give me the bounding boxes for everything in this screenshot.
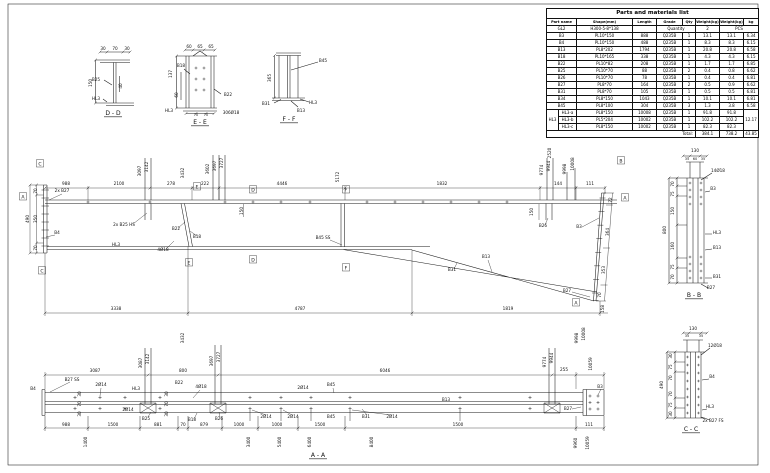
table-cell: PL10*82 xyxy=(577,61,633,68)
section-marker: A xyxy=(572,299,579,307)
dim-label: 70 xyxy=(33,188,38,194)
table-cell: Q235B xyxy=(657,75,683,82)
drawing-label: 1000 xyxy=(272,422,283,427)
table-cell: 6.15 xyxy=(744,40,759,47)
drawing-label: HL3 xyxy=(713,230,721,235)
table-row: Parts and materials list xyxy=(547,9,759,19)
drawing-label: B3 xyxy=(597,384,603,389)
drawing-label: B27 xyxy=(563,288,572,293)
table-cell: 1.7 xyxy=(720,61,744,68)
drawing-label: HL3 xyxy=(92,96,100,101)
drawing-label: 130 xyxy=(689,326,697,331)
table-cell: 2 xyxy=(696,26,720,33)
table-cell: Part name xyxy=(547,19,577,26)
table-cell: 10002 xyxy=(633,124,657,131)
table-cell: 1043 xyxy=(633,96,657,103)
table-row: B13PL8*2021794Q235B120.820.86.58 xyxy=(547,47,759,54)
table-cell: 20.8 xyxy=(720,47,744,54)
drawing-label: 879 xyxy=(200,422,208,427)
drawing-label: 111 xyxy=(586,181,594,186)
table-row: Total:384.1738.243.85 xyxy=(547,131,759,138)
table-cell: 6.81 xyxy=(744,75,759,82)
table-cell: 1 xyxy=(683,89,696,96)
drawing-label: B26 xyxy=(215,416,224,421)
dim-label: 8400 xyxy=(369,436,374,447)
dim-label: 70 xyxy=(597,292,602,298)
section-marker: A xyxy=(621,194,628,202)
table-cell: Total: xyxy=(547,131,696,138)
drawing-label: 14Ø18 xyxy=(711,168,725,173)
table-row: GL2H300-5-8*138Quantity2PCS xyxy=(547,26,759,33)
dim-label: 40 xyxy=(118,83,123,89)
table-cell: 338 xyxy=(633,54,657,61)
table-cell: Q235B xyxy=(657,54,683,61)
section-cc-lines xyxy=(667,333,710,420)
table-cell: Grade xyxy=(657,19,683,26)
section-title-ee: E - E xyxy=(193,119,207,126)
table-cell: B31 xyxy=(547,89,577,96)
drawing-label: B31 xyxy=(262,101,271,106)
table-cell: Q235B xyxy=(657,40,683,47)
table-cell: 164 xyxy=(633,82,657,89)
dim-label: 75 xyxy=(668,402,673,408)
table-row: HL3-cPL8*15010002Q235B182.382.3 xyxy=(547,124,759,131)
table-cell: 1794 xyxy=(633,47,657,54)
table-cell: 1 xyxy=(683,40,696,47)
table-cell: GL2 xyxy=(547,26,577,33)
table-cell: 488 xyxy=(633,40,657,47)
drawing-label: 2Ø14 xyxy=(122,407,134,412)
table-cell: 102.2 xyxy=(720,117,744,124)
drawing-label: 2Ø14 xyxy=(297,385,309,390)
table-cell: PL8*70 xyxy=(577,82,633,89)
table-cell: 1.7 xyxy=(696,61,720,68)
dim-label: 3697 xyxy=(209,355,214,366)
drawing-label: 35 xyxy=(685,157,689,161)
table-cell: 6.58 xyxy=(744,103,759,110)
table-row: B31PL8*70105Q235B10.50.56.81 xyxy=(547,89,759,96)
drawing-label: B45 xyxy=(327,414,336,419)
dim-label: 10059 xyxy=(588,357,593,371)
table-cell: 0.9 xyxy=(720,82,744,89)
dim-label: 3727 xyxy=(219,157,224,168)
dim-label: 353 xyxy=(601,266,606,274)
drawing-label: B13 xyxy=(713,245,722,250)
drawing-label: B22 xyxy=(175,380,184,385)
table-cell: PL10*150 xyxy=(577,33,633,40)
drawing-label: 988 xyxy=(62,181,70,186)
drawing-label: B27 SS xyxy=(65,377,80,382)
drawing-label: 60 xyxy=(186,44,192,49)
table-cell: 6.34 xyxy=(744,33,759,40)
drawing-label: B27 xyxy=(707,285,716,290)
dim-label: 10008 xyxy=(581,327,586,341)
table-cell: Q235B xyxy=(657,117,683,124)
dim-label: 9998 xyxy=(562,163,567,174)
drawing-sheet: 30703015040B25HL3D - D60656513760B18B22H… xyxy=(0,0,770,473)
dim-label: 70 xyxy=(668,375,673,381)
drawing-label: 35 xyxy=(699,334,703,338)
section-marker-letter: D xyxy=(251,258,255,264)
drawing-label: 278 xyxy=(167,181,175,186)
drawing-label: 70 xyxy=(180,422,186,427)
dim-label: 150 xyxy=(239,207,244,215)
table-cell: 91.8 xyxy=(696,110,720,117)
dim-label: 75 xyxy=(670,264,675,270)
table-cell: Q235B xyxy=(657,82,683,89)
drawing-label: 800 xyxy=(179,368,187,373)
section-marker: D xyxy=(249,256,256,264)
table-cell: 8.3 xyxy=(696,40,720,47)
table-row: B3PL10*150888Q235B113.113.16.34 xyxy=(547,33,759,40)
drawing-label: HL3 xyxy=(132,386,140,391)
drawing-label: B22 xyxy=(224,92,233,97)
section-marker: A xyxy=(19,193,26,201)
drawing-label: 1000 xyxy=(234,422,245,427)
table-cell: Qty xyxy=(683,19,696,26)
table-cell: Q235B xyxy=(657,124,683,131)
drawing-label: 988 xyxy=(62,422,70,427)
table-cell: 1 xyxy=(683,47,696,54)
dim-label: 9774 xyxy=(539,164,544,175)
drawing-label: 1500 xyxy=(108,422,119,427)
table-cell: 1 xyxy=(683,61,696,68)
drawing-label: B4 xyxy=(30,386,36,391)
section-marker: B xyxy=(617,157,624,165)
dim-label: 364 xyxy=(605,228,610,236)
dim-label: 3097 xyxy=(137,165,142,176)
table-row: Part nameShape(mm)LengthGradeQtyWeight(k… xyxy=(547,19,759,26)
section-marker-letter: A xyxy=(623,196,627,202)
table-cell: 10002 xyxy=(633,117,657,124)
section-marker: E xyxy=(193,183,200,191)
dim-label: 3432 xyxy=(180,167,185,178)
drawing-label: 1500 xyxy=(315,422,326,427)
table-cell: 10.1 xyxy=(696,96,720,103)
dim-label: 1400 xyxy=(83,436,88,447)
main-girder-lines xyxy=(44,155,618,301)
drawing-label: B3 xyxy=(576,224,582,229)
section-title-cc: C - C xyxy=(684,426,698,433)
drawing-label: HL3 xyxy=(165,108,173,113)
drawing-label: 2x B25 HS xyxy=(113,222,135,227)
dim-label: 490 xyxy=(659,381,664,389)
dim-label: 9944 xyxy=(546,160,551,171)
drawing-label: 4Ø18 xyxy=(157,247,169,252)
drawing-label: 6046 xyxy=(380,368,391,373)
drawing-label: 35 xyxy=(701,157,705,161)
drawing-label: 35 xyxy=(685,334,689,338)
section-marker-letter: E xyxy=(188,261,191,267)
dim-label: 9960 xyxy=(573,437,578,448)
drawing-label: B45 xyxy=(327,382,336,387)
table-cell: 6.58 xyxy=(744,47,759,54)
dim-label: 10059 xyxy=(585,436,590,450)
drawing-label: HL3 xyxy=(706,404,714,409)
drawing-label: 881 xyxy=(154,422,162,427)
table-cell: PL10*150 xyxy=(577,40,633,47)
drawing-label: 111 xyxy=(585,422,593,427)
drawing-label: B18 xyxy=(193,234,202,239)
table-cell: 13.1 xyxy=(720,33,744,40)
table-cell: 0.5 xyxy=(696,82,720,89)
table-cell: 1 xyxy=(683,110,696,117)
drawing-label: B22 xyxy=(172,226,181,231)
drawing-label: 12Ø18 xyxy=(708,343,722,348)
table-cell: Q235B xyxy=(657,47,683,54)
drawing-label: 2Ø14 xyxy=(386,414,398,419)
table-cell: 0.4 xyxy=(720,75,744,82)
table-row: B26PL10*7078Q235B10.40.46.81 xyxy=(547,75,759,82)
table-cell: B18 xyxy=(547,54,577,61)
table-cell: 6.85 xyxy=(744,61,759,68)
table-cell: 91.8 xyxy=(720,110,744,117)
table-cell: HL3 xyxy=(547,110,559,131)
drawing-label: 2x B27 FS xyxy=(703,418,724,423)
dim-label: 150 xyxy=(670,207,675,215)
table-cell: 304 xyxy=(633,103,657,110)
drawing-label: B31 xyxy=(362,414,371,419)
table-cell: Q235B xyxy=(657,89,683,96)
section-marker-letter: C xyxy=(40,269,43,275)
drawing-label: 30 xyxy=(100,46,106,51)
drawing-label: 4446 xyxy=(277,181,288,186)
table-cell: HL3-c xyxy=(559,124,577,131)
table-cell: 4.3 xyxy=(720,54,744,61)
table-cell: 0.5 xyxy=(720,89,744,96)
table-cell: B26 xyxy=(547,75,577,82)
table-cell: 3 xyxy=(683,103,696,110)
table-cell: 208 xyxy=(633,61,657,68)
dim-label: 3727 xyxy=(216,351,221,362)
drawing-label: B18 xyxy=(188,417,197,422)
drawing-label: 4787 xyxy=(295,306,306,311)
main-dim-lines xyxy=(30,185,614,316)
table-cell: PL8*100 xyxy=(577,103,633,110)
table-cell: PL10*70 xyxy=(577,68,633,75)
table-cell: HL3-b xyxy=(559,117,577,124)
table-cell: PL8*150 xyxy=(577,124,633,131)
dim-label: 365 xyxy=(267,74,272,82)
table-cell: 0.4 xyxy=(696,75,720,82)
section-marker-letter: A xyxy=(574,301,578,307)
dim-label: 350 xyxy=(33,215,38,223)
drawing-label: 60 xyxy=(693,157,697,161)
table-cell: 1 xyxy=(683,33,696,40)
table-cell: 10008 xyxy=(633,110,657,117)
drawing-label: 144 xyxy=(554,181,562,186)
table-cell: 12.17 xyxy=(744,110,759,131)
table-cell: B34 xyxy=(547,96,577,103)
drawing-label: B13 xyxy=(482,254,491,259)
drawing-label: 2100 xyxy=(114,181,125,186)
table-cell: 10.1 xyxy=(720,96,744,103)
table-cell: PL8*202 xyxy=(577,47,633,54)
dim-label: 30 xyxy=(77,411,82,417)
table-row: B34PL8*1501043Q235B110.110.16.81 xyxy=(547,96,759,103)
drawing-label: 70 xyxy=(112,46,118,51)
table-cell: 6.81 xyxy=(744,89,759,96)
section-dd-lines xyxy=(96,52,135,106)
table-cell: B13 xyxy=(547,47,577,54)
drawing-label: B13 xyxy=(442,397,451,402)
table-cell: Q235B xyxy=(657,33,683,40)
table-row: B22PL10*82208Q235B11.71.76.85 xyxy=(547,61,759,68)
dim-label: 3400 xyxy=(246,436,251,447)
dim-label: 160 xyxy=(670,242,675,250)
dim-label: 70 xyxy=(33,245,38,251)
drawing-label: B3 xyxy=(710,186,716,191)
dim-label: 158 xyxy=(600,305,605,313)
dim-label: 70 xyxy=(668,391,673,397)
dim-label: 30 xyxy=(77,391,82,397)
table-cell: PL10*165 xyxy=(577,54,633,61)
drawing-label: B25 xyxy=(142,416,151,421)
drawing-label: 3338 xyxy=(111,306,122,311)
table-cell: H300-5-8*138 xyxy=(577,26,633,33)
drawing-label: B31 xyxy=(448,267,457,272)
drawing-label: 2x B27 xyxy=(55,188,70,193)
dim-label: 6400 xyxy=(307,436,312,447)
table-cell: 102.2 xyxy=(696,117,720,124)
dim-label: 30 xyxy=(668,411,673,417)
dim-label: 70 xyxy=(77,401,82,407)
drawing-label: 2Ø14 xyxy=(287,414,299,419)
view-title-aa: A - A xyxy=(311,452,326,459)
section-marker-letter: D xyxy=(251,188,255,194)
table-cell: HL3-a xyxy=(559,110,577,117)
dim-label: 9944 xyxy=(549,352,554,363)
dim-label: 5400 xyxy=(277,436,282,447)
table-cell: PL5*204 xyxy=(577,117,633,124)
section-marker-letter: F xyxy=(345,266,348,272)
table-cell: B27 xyxy=(547,82,577,89)
table-cell: 6.15 xyxy=(744,54,759,61)
section-marker-letter: B xyxy=(619,159,622,165)
dim-label: 150 xyxy=(529,208,534,216)
table-cell: B45 xyxy=(547,103,577,110)
table-cell: Weight(kg) xyxy=(696,19,720,26)
table-cell: Q235B xyxy=(657,110,683,117)
dim-label: 70 xyxy=(670,274,675,280)
table-cell: 1 xyxy=(683,54,696,61)
table-cell: PCS xyxy=(720,26,759,33)
drawing-label: 3087 xyxy=(90,368,101,373)
table-cell: 0.8 xyxy=(720,68,744,75)
table-cell: PL10*70 xyxy=(577,75,633,82)
section-marker-letter: C xyxy=(38,162,41,168)
drawing-label: 255 xyxy=(560,367,568,372)
dim-label: 3087 xyxy=(138,357,143,368)
table-cell: Q235B xyxy=(657,96,683,103)
dim-label: 70 xyxy=(164,401,169,407)
bottom-dim-lines xyxy=(45,372,604,428)
drawing-label: 222 xyxy=(201,181,209,186)
table-cell: 4.3 xyxy=(696,54,720,61)
table-cell: 1 xyxy=(683,117,696,124)
section-marker-letter: E xyxy=(196,185,199,191)
drawing-label: 65 xyxy=(208,44,214,49)
dim-label: 9774 xyxy=(542,356,547,367)
table-cell: 2 xyxy=(683,68,696,75)
table-row: B25PL10*7088Q235B20.40.86.62 xyxy=(547,68,759,75)
dim-label: 9998 xyxy=(574,332,579,343)
table-cell: PL8*150 xyxy=(577,110,633,117)
drawing-label: 2Ø14 xyxy=(95,382,107,387)
table-cell: 82.3 xyxy=(720,124,744,131)
section-marker: C xyxy=(36,160,43,168)
drawing-label: B45 SS xyxy=(316,235,331,240)
table-cell: 6.62 xyxy=(744,82,759,89)
drawing-label: 4Ø18 xyxy=(195,384,207,389)
drawing-label: 2Ø14 xyxy=(260,414,272,419)
table-cell: 8.3 xyxy=(720,40,744,47)
dim-label: 3432 xyxy=(180,332,185,343)
table-cell: 0.4 xyxy=(696,68,720,75)
section-ee-lines xyxy=(177,50,222,114)
drawing-label: B31 xyxy=(713,274,722,279)
table-cell: 384.1 xyxy=(696,131,720,138)
drawing-label: 1819 xyxy=(503,306,514,311)
table-cell: 1 xyxy=(683,75,696,82)
table-cell: 888 xyxy=(633,33,657,40)
table-row: HL3-bPL5*20410002Q235B1102.2102.2 xyxy=(547,117,759,124)
section-marker: C xyxy=(38,267,45,275)
drawing-label: B26 xyxy=(539,223,548,228)
drawing-label: 70 xyxy=(194,113,198,117)
table-cell: B4 xyxy=(547,40,577,47)
table-row: B4PL10*150488Q235B18.38.36.15 xyxy=(547,40,759,47)
table-row: B45PL8*100304Q235B31.33.86.58 xyxy=(547,103,759,110)
table-cell: 1.3 xyxy=(696,103,720,110)
table-cell: Q235B xyxy=(657,68,683,75)
section-marker: D xyxy=(249,186,256,194)
drawing-label: B4 xyxy=(709,374,715,379)
dim-label: 30 xyxy=(164,391,169,397)
dim-label: 30 xyxy=(164,411,169,417)
dim-label: 60 xyxy=(174,92,179,98)
table-cell: B3 xyxy=(547,33,577,40)
section-title-ff: F - F xyxy=(283,116,296,123)
table-cell: 105 xyxy=(633,89,657,96)
table-cell: 78 xyxy=(633,75,657,82)
drawing-label: HL3 xyxy=(309,100,317,105)
drawing-label: B13 xyxy=(297,108,306,113)
table-cell: Shape(mm) xyxy=(577,19,633,26)
drawing-label: B45 xyxy=(319,58,328,63)
drawing-label: 65 xyxy=(197,44,203,49)
table-cell: 1 xyxy=(683,96,696,103)
table-cell: kg xyxy=(744,19,759,26)
dim-label: 3697 xyxy=(212,160,217,171)
table-cell: Q235B xyxy=(657,103,683,110)
dim-label: 800 xyxy=(662,226,667,234)
dim-label: 3602 xyxy=(205,163,210,174)
table-cell: 20.8 xyxy=(696,47,720,54)
table-cell xyxy=(633,26,657,33)
table-cell: Quantity xyxy=(657,26,696,33)
table-cell: 0.5 xyxy=(696,89,720,96)
table-row: B27PL8*70164Q235B20.50.96.62 xyxy=(547,82,759,89)
drawing-label: B25 xyxy=(92,77,101,82)
drawing-label: 1832 xyxy=(437,181,448,186)
table-cell: PL8*150 xyxy=(577,96,633,103)
table-cell: 1 xyxy=(683,124,696,131)
table-cell: 2 xyxy=(683,82,696,89)
table-cell: 88 xyxy=(633,68,657,75)
table-cell: B25 xyxy=(547,68,577,75)
dim-label: 3142 xyxy=(145,353,150,364)
